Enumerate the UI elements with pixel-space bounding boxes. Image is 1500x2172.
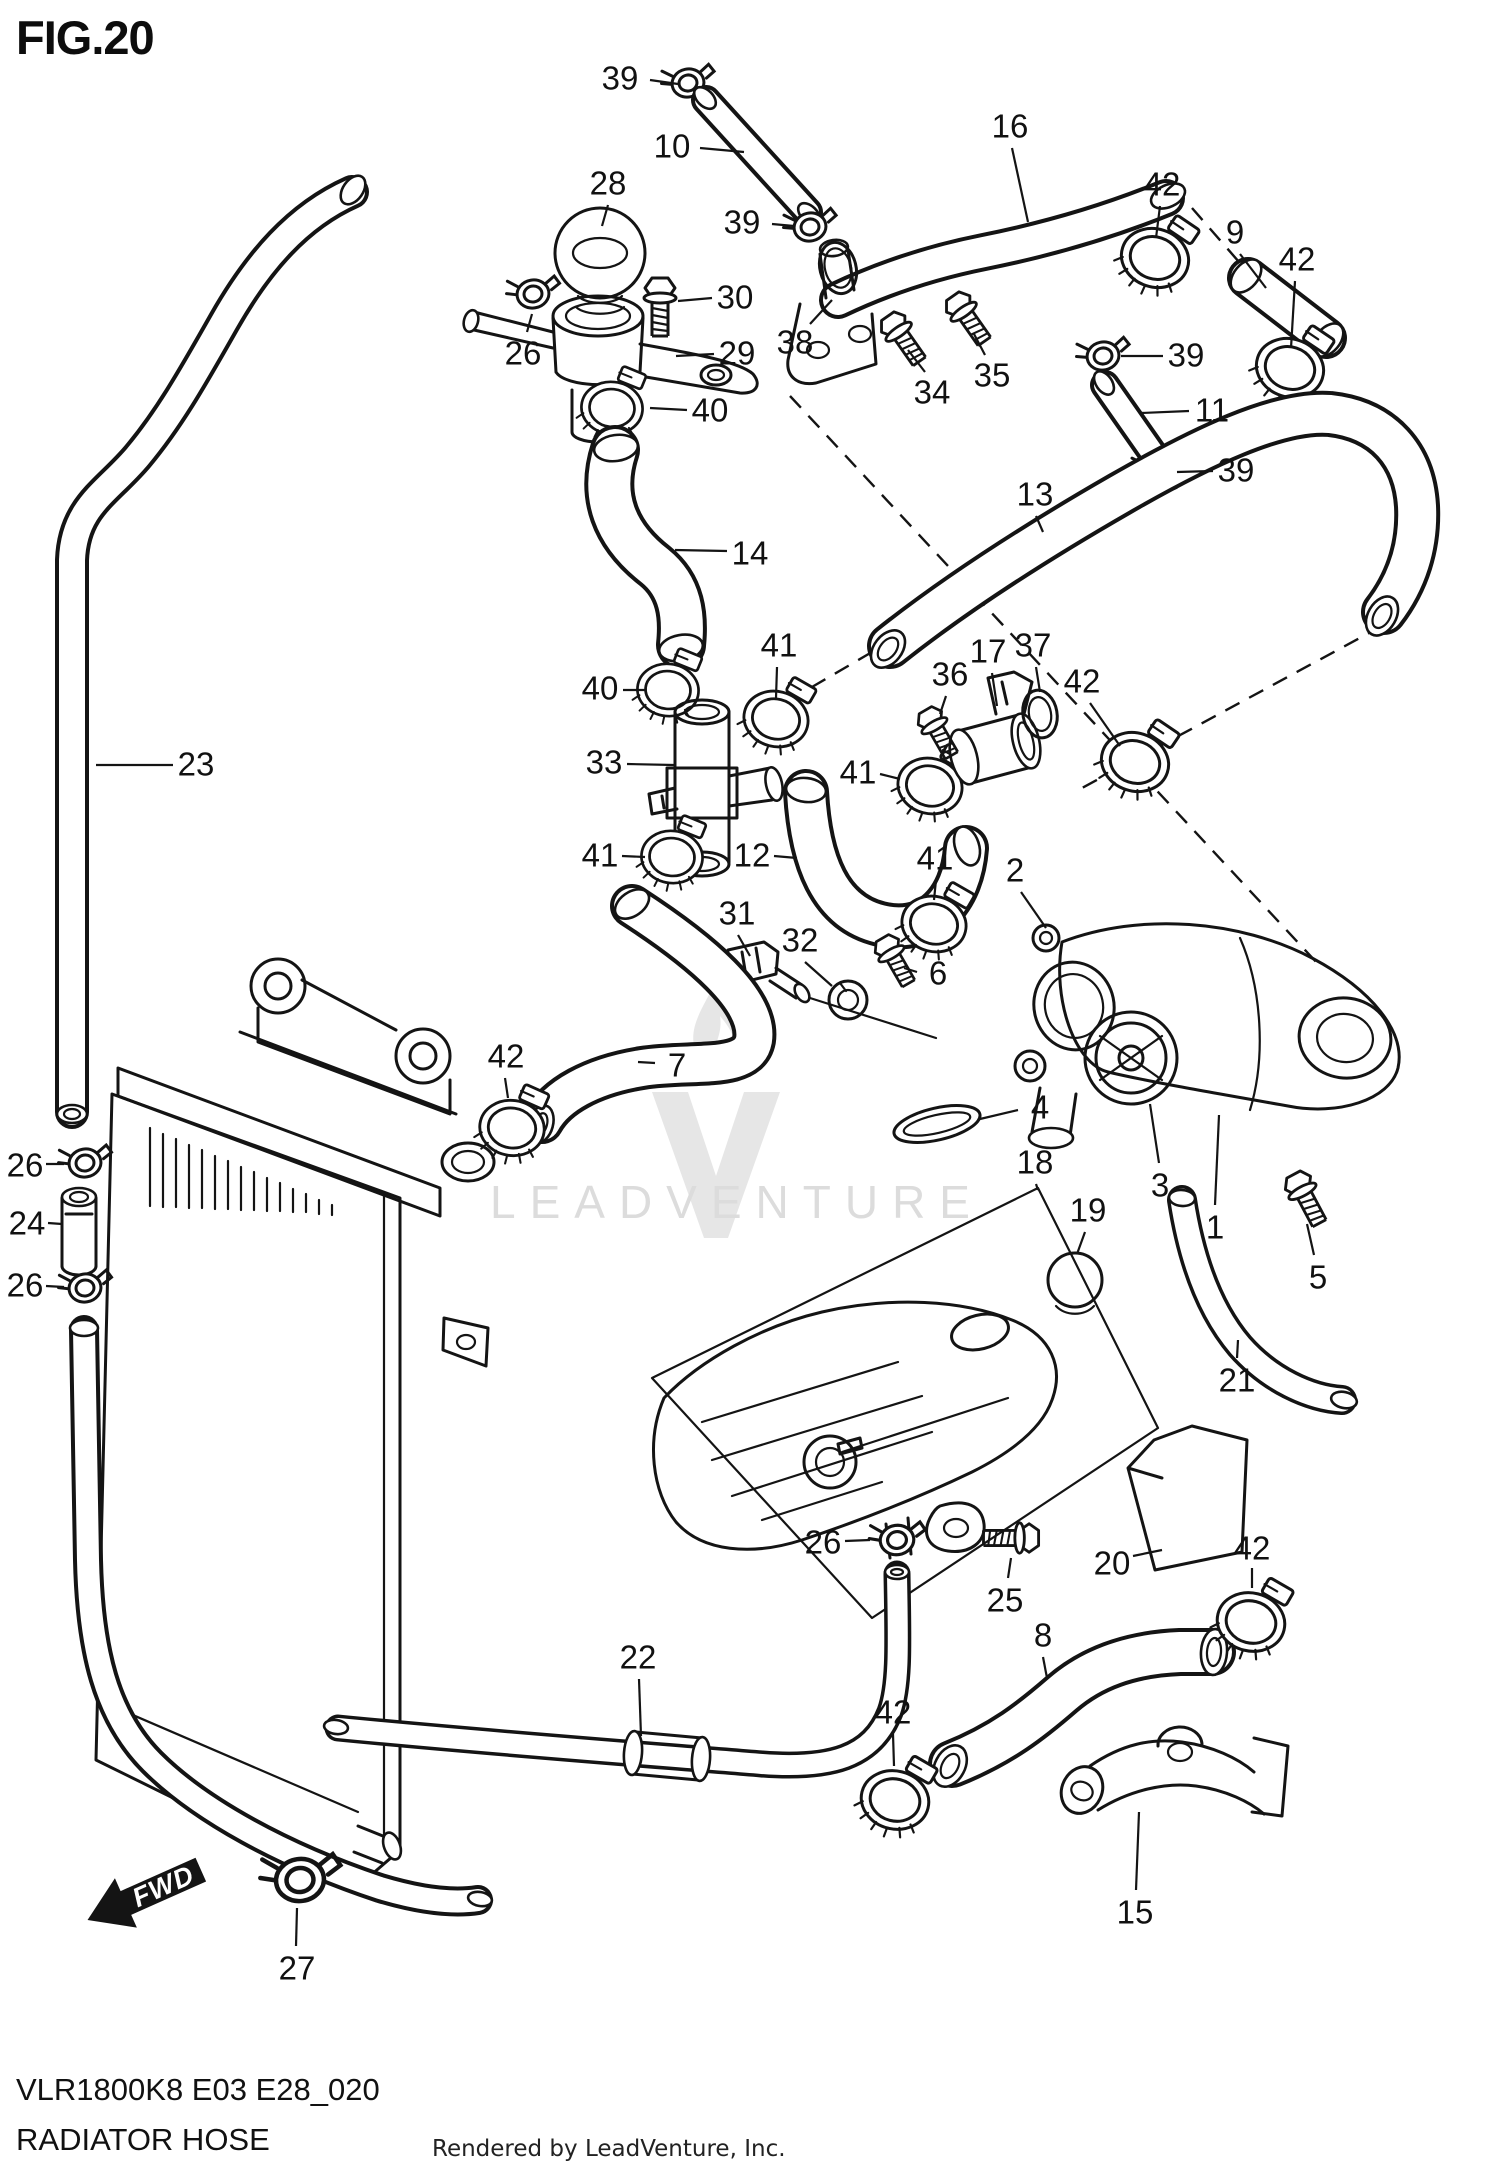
part-number-label: 41: [840, 756, 877, 789]
part-number-label: 13: [1017, 478, 1054, 511]
part-number-label: 39: [724, 206, 761, 239]
figure-name: RADIATOR HOSE: [16, 2122, 270, 2158]
part-number-label: 31: [719, 897, 756, 930]
part-number-label: 40: [582, 672, 619, 705]
part-number-label: 39: [1168, 339, 1205, 372]
part-number-label: 33: [586, 746, 623, 779]
part-number-label: 26: [7, 1149, 44, 1182]
part-number-label: 6: [929, 957, 947, 990]
part-number-label: 14: [732, 537, 769, 570]
part-number-label: 24: [9, 1207, 46, 1240]
part-number-label: 26: [505, 337, 542, 370]
part-number-label: 15: [1117, 1896, 1154, 1929]
part-number-label: 9: [1226, 216, 1244, 249]
part-number-label: 35: [974, 359, 1011, 392]
part-labels-layer: 3910162839429423026293834353911394014132…: [0, 0, 1500, 2172]
part-number-label: 23: [178, 748, 215, 781]
part-number-label: 39: [1218, 454, 1255, 487]
part-number-label: 17: [970, 635, 1007, 668]
part-number-label: 41: [582, 839, 619, 872]
part-number-label: 12: [734, 839, 771, 872]
part-number-label: 32: [782, 924, 819, 957]
part-number-label: 42: [1144, 168, 1181, 201]
part-number-label: 39: [602, 62, 639, 95]
part-number-label: 30: [717, 281, 754, 314]
part-number-label: 42: [488, 1040, 525, 1073]
part-number-label: 22: [620, 1641, 657, 1674]
parts-diagram-page: LEADVENTURE: [0, 0, 1500, 2172]
part-number-label: 42: [875, 1696, 912, 1729]
figure-title: FIG.20: [16, 10, 154, 65]
part-number-label: 26: [805, 1526, 842, 1559]
part-number-label: 40: [692, 394, 729, 427]
part-number-label: 21: [1219, 1364, 1256, 1397]
part-number-label: 26: [7, 1269, 44, 1302]
part-number-label: 42: [1064, 665, 1101, 698]
part-number-label: 41: [761, 629, 798, 662]
part-number-label: 27: [279, 1952, 316, 1985]
part-number-label: 4: [1031, 1091, 1049, 1124]
part-number-label: 42: [1234, 1532, 1271, 1565]
part-number-label: 7: [668, 1049, 686, 1082]
part-number-label: 42: [1279, 243, 1316, 276]
model-code: VLR1800K8 E03 E28_020: [16, 2072, 380, 2108]
part-number-label: 19: [1070, 1194, 1107, 1227]
part-number-label: 36: [932, 658, 969, 691]
part-number-label: 2: [1006, 854, 1024, 887]
part-number-label: 8: [1034, 1619, 1052, 1652]
part-number-label: 5: [1309, 1261, 1327, 1294]
part-number-label: 25: [987, 1584, 1024, 1617]
part-number-label: 38: [777, 326, 814, 359]
part-number-label: 11: [1195, 394, 1229, 427]
rendered-by-credit: Rendered by LeadVenture, Inc.: [432, 2136, 786, 2162]
part-number-label: 29: [719, 337, 756, 370]
part-number-label: 20: [1094, 1547, 1131, 1580]
part-number-label: 34: [914, 376, 951, 409]
part-number-label: 3: [1151, 1169, 1169, 1202]
part-number-label: 18: [1017, 1146, 1054, 1179]
part-number-label: 16: [992, 110, 1029, 143]
part-number-label: 41: [917, 842, 954, 875]
part-number-label: 1: [1206, 1211, 1224, 1244]
part-number-label: 37: [1015, 629, 1052, 662]
part-number-label: 10: [654, 130, 691, 163]
part-number-label: 28: [590, 167, 627, 200]
